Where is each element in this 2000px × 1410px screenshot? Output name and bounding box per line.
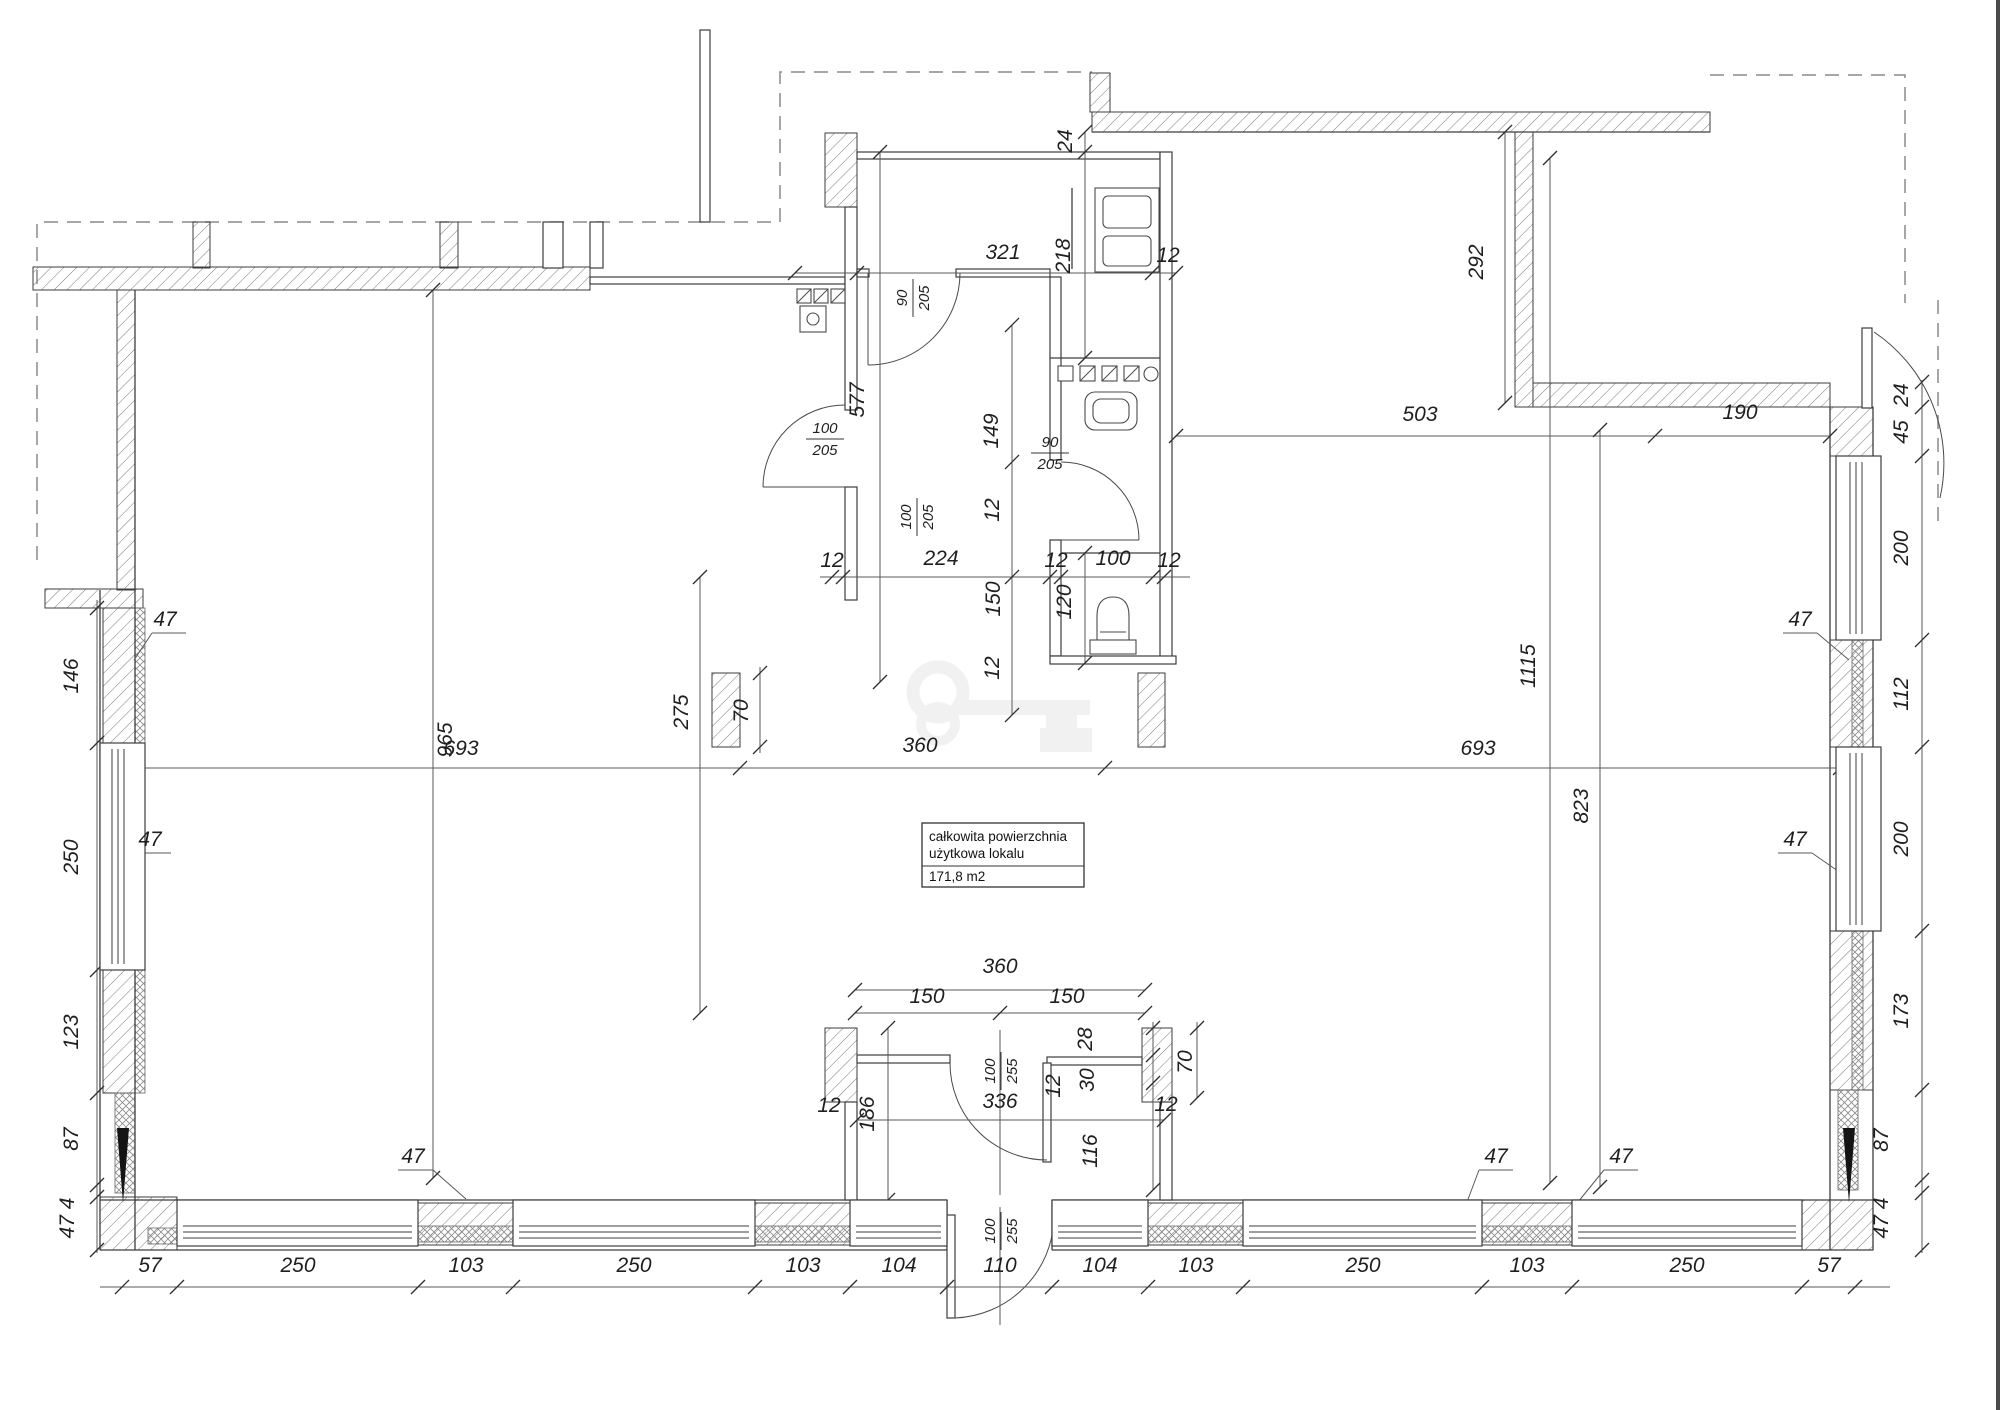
dim-label: 47 bbox=[138, 828, 163, 851]
svg-text:205: 205 bbox=[916, 285, 933, 312]
dim-label: 250 bbox=[60, 839, 83, 875]
dim-label: 12 bbox=[1156, 244, 1180, 267]
dim-label: 57 bbox=[1817, 1254, 1842, 1277]
dim-label: 12 bbox=[1042, 1074, 1065, 1098]
dim-label: 123 bbox=[60, 1014, 83, 1049]
dim-label: 12 bbox=[1044, 549, 1068, 572]
dim-label: 110 bbox=[983, 1254, 1017, 1277]
dim-label: 24 bbox=[1890, 383, 1913, 407]
dim-label: 250 bbox=[1344, 1254, 1380, 1277]
dim-label: 250 bbox=[1668, 1254, 1704, 1277]
door-size-label: 90205 bbox=[894, 279, 933, 317]
dim-label: 693 bbox=[443, 737, 478, 760]
dim-label: 57 bbox=[138, 1254, 163, 1277]
door-size-label: 90205 bbox=[1031, 434, 1069, 473]
toilet-icon bbox=[1090, 597, 1136, 654]
dim-label: 336 bbox=[982, 1090, 1017, 1113]
dim-label: 45 bbox=[1890, 420, 1913, 444]
svg-text:100: 100 bbox=[812, 420, 838, 437]
dim-label: 823 bbox=[1570, 788, 1593, 823]
dim-label: 577 bbox=[846, 381, 869, 417]
floorplan-drawing: 5725010325010310411010410325010325057146… bbox=[0, 0, 2000, 1410]
dim-label: 12 bbox=[1157, 549, 1181, 572]
svg-text:90: 90 bbox=[894, 289, 911, 306]
svg-text:255: 255 bbox=[1004, 1058, 1021, 1085]
dim-label: 116 bbox=[1079, 1134, 1102, 1168]
sink-icon bbox=[1085, 392, 1137, 430]
dim-label: 47 bbox=[153, 608, 178, 631]
area-info-line2: użytkowa lokalu bbox=[929, 846, 1024, 861]
svg-text:100: 100 bbox=[898, 504, 915, 530]
fridge-icon bbox=[1095, 188, 1159, 272]
dim-label: 12 bbox=[817, 1094, 841, 1117]
dim-label: 190 bbox=[1722, 401, 1757, 424]
dim-label: 360 bbox=[982, 955, 1017, 978]
dim-label: 292 bbox=[1465, 244, 1488, 280]
dim-label: 47 bbox=[1783, 828, 1808, 851]
walls-hatched bbox=[33, 73, 1873, 1250]
area-info-line1: całkowita powierzchnia bbox=[929, 829, 1068, 844]
dim-label: 70 bbox=[1174, 1050, 1197, 1074]
dim-label: 28 bbox=[1074, 1027, 1097, 1052]
dim-label: 149 bbox=[980, 413, 1003, 448]
dim-label: 186 bbox=[856, 1096, 879, 1131]
dim-label: 47 bbox=[401, 1145, 426, 1168]
dimension-lines bbox=[97, 132, 1922, 1325]
dim-label: 150 bbox=[982, 581, 1005, 616]
dim-label: 104 bbox=[881, 1254, 916, 1277]
dim-label: 693 bbox=[1460, 737, 1495, 760]
vent-shaft-icon bbox=[797, 289, 845, 332]
dim-label: 47 bbox=[1484, 1145, 1509, 1168]
dim-label: 104 bbox=[1082, 1254, 1117, 1277]
dim-label: 103 bbox=[448, 1254, 483, 1277]
door-size-label: 100255 bbox=[982, 1052, 1021, 1090]
dim-label: 47 bbox=[1788, 608, 1813, 631]
dim-label: 47 bbox=[1609, 1145, 1634, 1168]
dim-label: 12 bbox=[981, 498, 1004, 522]
dim-label: 360 bbox=[902, 734, 937, 757]
dim-label: 120 bbox=[1053, 584, 1076, 619]
svg-text:255: 255 bbox=[1004, 1218, 1021, 1245]
dim-label: 103 bbox=[1509, 1254, 1544, 1277]
dim-label: 12 bbox=[820, 549, 844, 572]
dim-label: 218 bbox=[1052, 238, 1075, 274]
fixtures bbox=[117, 188, 1855, 1203]
svg-text:90: 90 bbox=[1042, 434, 1059, 451]
floorplan-page: 5725010325010310411010410325010325057146… bbox=[0, 0, 2000, 1410]
svg-text:100: 100 bbox=[982, 1218, 999, 1244]
dim-label: 87 bbox=[60, 1126, 83, 1151]
dim-label: 250 bbox=[279, 1254, 315, 1277]
dim-label: 12 bbox=[1154, 1093, 1178, 1116]
dim-label: 200 bbox=[1890, 530, 1913, 566]
svg-text:205: 205 bbox=[811, 442, 838, 459]
area-info-value: 171,8 m2 bbox=[929, 869, 985, 884]
dim-label: 200 bbox=[1890, 821, 1913, 857]
dim-label: 103 bbox=[785, 1254, 820, 1277]
dim-label: 146 bbox=[60, 658, 83, 693]
dim-label: 275 bbox=[670, 694, 693, 730]
dim-label: 112 bbox=[1890, 677, 1913, 711]
dim-label: 103 bbox=[1178, 1254, 1213, 1277]
walls-partitions bbox=[543, 30, 1176, 1200]
dim-label: 250 bbox=[615, 1254, 651, 1277]
dim-label: 87 bbox=[1870, 1127, 1893, 1152]
dashed-outline bbox=[37, 72, 1938, 560]
dim-label: 70 bbox=[730, 699, 753, 723]
area-info-box: całkowita powierzchnia użytkowa lokalu 1… bbox=[922, 823, 1084, 887]
dim-label: 30 bbox=[1076, 1068, 1099, 1092]
door-size-label: 100205 bbox=[898, 498, 937, 536]
burner-row-icon bbox=[1058, 366, 1158, 381]
svg-text:100: 100 bbox=[982, 1058, 999, 1084]
svg-text:205: 205 bbox=[1036, 456, 1063, 473]
dim-label: 173 bbox=[1890, 993, 1913, 1028]
dim-label: 150 bbox=[909, 985, 944, 1008]
svg-text:205: 205 bbox=[920, 504, 937, 531]
doors bbox=[763, 273, 1944, 1318]
dim-label: 224 bbox=[922, 547, 958, 570]
door-size-label: 100205 bbox=[806, 420, 844, 459]
dim-label: 1115 bbox=[1517, 644, 1540, 688]
dim-label: 321 bbox=[985, 241, 1020, 264]
dim-label: 24 bbox=[1054, 129, 1077, 153]
dim-label: 47 4 bbox=[1870, 1198, 1893, 1239]
dim-label: 47 4 bbox=[56, 1198, 79, 1239]
dim-label: 150 bbox=[1049, 985, 1084, 1008]
dim-label: 12 bbox=[981, 656, 1004, 680]
dim-label: 503 bbox=[1402, 403, 1437, 426]
page-border-right bbox=[1996, 0, 2000, 1410]
dim-label: 100 bbox=[1095, 547, 1130, 570]
